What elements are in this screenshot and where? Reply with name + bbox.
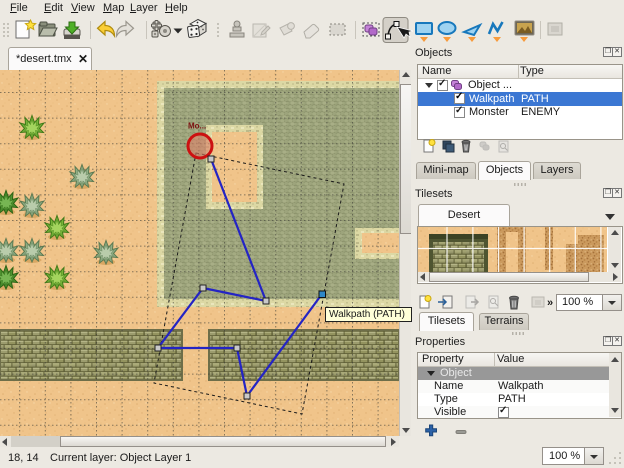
svg-text:Mo...: Mo...	[188, 122, 206, 131]
